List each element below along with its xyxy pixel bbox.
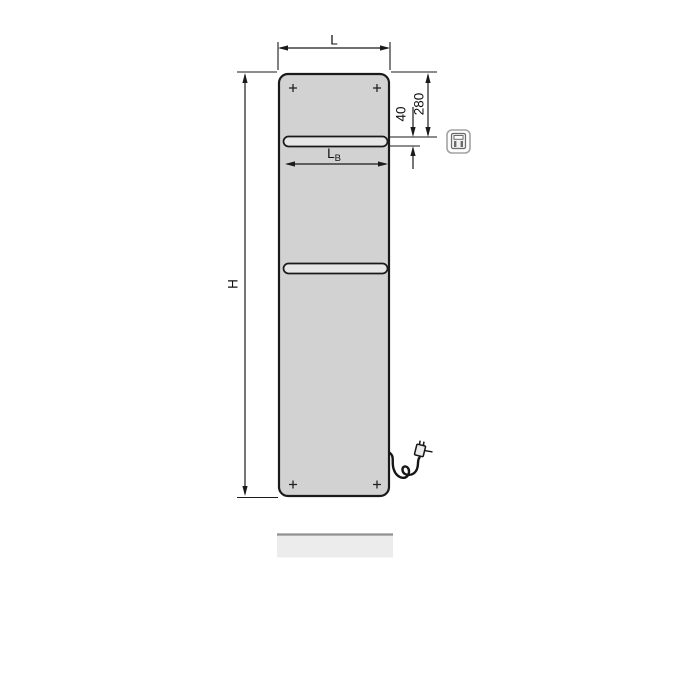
arrow-L-right	[380, 45, 390, 50]
dim-label-width: L	[330, 33, 338, 47]
dim-label-rail-width-main: L	[327, 146, 335, 161]
floor-shadow	[277, 534, 393, 558]
towel-rail-slot-lower	[284, 264, 388, 274]
electric-plug-icon	[447, 130, 470, 153]
arrow-L-left	[278, 45, 288, 50]
dim-label-height: H	[226, 279, 240, 289]
dim-label-40: 40	[394, 106, 408, 121]
cord-path	[390, 453, 420, 478]
drawing-canvas	[0, 0, 700, 700]
towel-rail-slot-upper	[284, 137, 388, 147]
dim-label-rail-width: LB	[327, 147, 341, 164]
arrow-280-bottom	[425, 127, 430, 137]
rail-extension-lines	[389, 137, 437, 146]
arrow-40-down	[410, 127, 415, 137]
plug-icon	[414, 440, 434, 459]
arrow-280-top	[425, 73, 430, 83]
power-cord	[390, 440, 434, 478]
shadow-rect	[277, 534, 393, 558]
arrow-H-bottom	[242, 486, 247, 496]
dim-label-rail-width-sub: B	[335, 153, 341, 164]
dimension-drawing: L H 280 40 LB	[0, 0, 700, 700]
arrow-40-up	[410, 146, 415, 156]
dim-label-280: 280	[412, 93, 426, 116]
arrow-H-top	[242, 73, 247, 83]
